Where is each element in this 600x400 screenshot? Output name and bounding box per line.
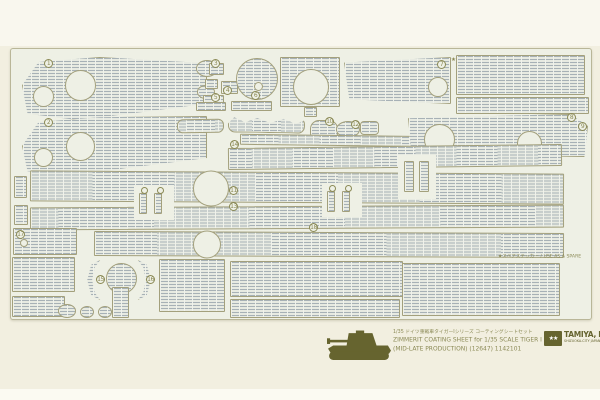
tamiya-logo-subtext: SHIZUOKA-CITY JAPAN <box>564 339 600 343</box>
sticker-piece <box>230 261 403 297</box>
cutout-hole <box>34 148 53 167</box>
piece-number-marker: 15 <box>96 275 105 284</box>
sticker-piece <box>456 97 589 114</box>
sticker-piece <box>230 299 400 318</box>
tamiya-stars-icon: ★★ <box>544 331 562 346</box>
piece-number-marker: 3 <box>211 59 220 68</box>
sticker-piece <box>14 176 27 198</box>
piece-number-marker: 14 <box>230 140 239 149</box>
cutout-hole <box>193 170 229 206</box>
piece-number-marker: 4 <box>223 86 232 95</box>
sticker-piece <box>196 102 226 111</box>
sticker-piece <box>58 304 76 318</box>
cutout-hole <box>428 77 448 97</box>
tamiya-logo: ★★ TAMIYA, INC. SHIZUOKA-CITY JAPAN <box>544 331 600 346</box>
sticker-piece <box>402 263 560 316</box>
piece-number-marker: 7 <box>437 60 446 69</box>
cutout-hole <box>33 86 54 107</box>
sticker-piece <box>419 161 429 192</box>
sticker-piece <box>404 161 414 192</box>
sticker-piece <box>139 193 147 214</box>
tamiya-logo-name: TAMIYA, INC. <box>564 331 600 339</box>
tank-silhouette-icon <box>327 330 391 361</box>
piece-number-marker: 8 <box>567 113 576 122</box>
photo-margin-top <box>0 0 600 46</box>
sticker-piece <box>30 170 564 204</box>
photo-margin-bottom <box>0 389 600 400</box>
cutout-hole <box>293 69 329 105</box>
sticker-piece <box>112 287 129 318</box>
piece-number-marker: 16 <box>146 275 155 284</box>
piece-number-marker: 6 <box>251 91 260 100</box>
piece-number-marker: 2 <box>44 118 53 127</box>
cutout-hole <box>20 239 28 247</box>
sticker-piece <box>98 306 112 318</box>
bolt-circle <box>157 187 164 194</box>
sticker-piece <box>231 101 272 111</box>
sticker-piece <box>228 144 562 170</box>
sticker-piece <box>327 191 335 212</box>
piece-number-marker: 18 <box>309 223 318 232</box>
cutout-hole <box>66 132 95 161</box>
sticker-piece <box>94 231 564 258</box>
sticker-piece <box>12 257 75 292</box>
sticker-piece <box>304 107 317 117</box>
piece-number-marker: 13 <box>229 202 238 211</box>
sticker-piece <box>12 296 65 317</box>
sticker-piece <box>342 191 350 212</box>
sticker-piece <box>456 55 585 95</box>
sticker-piece <box>80 306 94 318</box>
piece-number-marker: 5 <box>211 93 220 102</box>
piece-number-marker: 9 <box>578 122 587 131</box>
cutout-hole <box>65 70 96 101</box>
sticker-piece <box>344 57 451 104</box>
bolt-circle <box>141 187 148 194</box>
sticker-piece <box>205 79 218 89</box>
piece-number-marker: 11 <box>229 186 238 195</box>
sticker-piece <box>159 259 225 312</box>
caption-english-line2: (MID-LATE PRODUCTION) (12647) 1142101 <box>393 346 521 353</box>
cutout-hole <box>193 230 221 258</box>
piece-number-marker: 17 <box>16 230 25 239</box>
product-photo: 123456789101112131415161718 ★ ★スペアステッカー … <box>0 0 600 400</box>
sticker-piece <box>154 193 162 214</box>
bolt-circle <box>329 185 336 192</box>
caption-english-line1: ZIMMERIT COATING SHEET for 1/35 SCALE TI… <box>393 337 542 344</box>
piece-number-marker: 10 <box>325 117 334 126</box>
spare-sticker-label: ★スペアステッカー / USE AS A SPARE <box>498 253 581 259</box>
sticker-piece <box>360 121 379 135</box>
cutout-hole <box>254 82 263 91</box>
sticker-piece <box>280 57 340 107</box>
sticker-piece <box>14 205 28 225</box>
piece-number-marker: 1 <box>44 59 53 68</box>
bolt-circle <box>345 185 352 192</box>
sticker-piece <box>30 205 564 231</box>
sticker-piece <box>177 119 224 134</box>
star-mark: ★ <box>451 56 456 62</box>
piece-number-marker: 12 <box>351 120 360 129</box>
caption-japanese: 1/35 ドイツ重戦車タイガーIシリーズ コーティングシートセット <box>393 328 533 335</box>
